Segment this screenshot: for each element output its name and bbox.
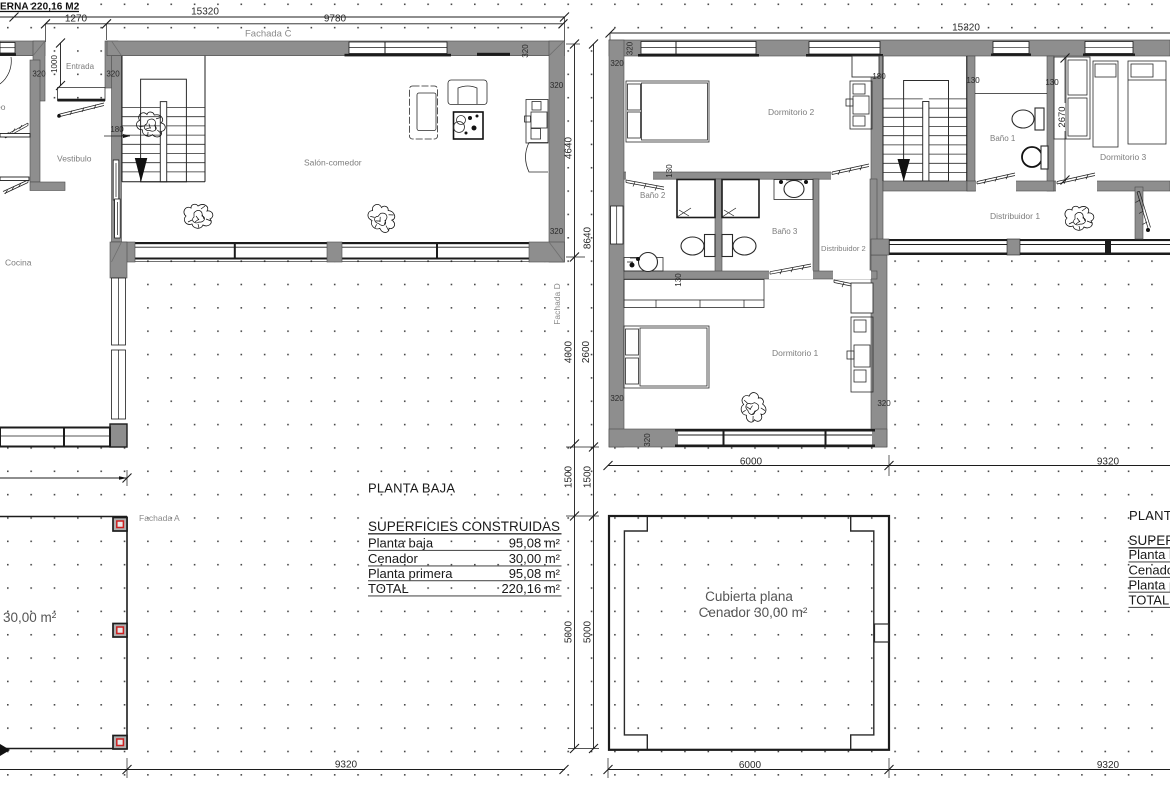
svg-text:eo: eo: [0, 102, 6, 112]
svg-text:Fachada A: Fachada A: [139, 513, 180, 523]
svg-text:4000: 4000: [564, 340, 575, 363]
svg-text:Planta primera: Planta primera: [368, 566, 453, 581]
svg-text:Distribuidor 1: Distribuidor 1: [990, 211, 1040, 221]
svg-text:Planta baja: Planta baja: [1129, 547, 1170, 562]
svg-text:320: 320: [877, 399, 891, 408]
svg-text:PLANTA BAJA: PLANTA BAJA: [368, 481, 455, 496]
svg-text:320: 320: [610, 394, 624, 403]
svg-text:320: 320: [32, 70, 46, 79]
svg-text:15320: 15320: [952, 23, 980, 34]
svg-text:Fachada C: Fachada C: [245, 29, 292, 40]
svg-text:TOTAL: TOTAL: [1129, 593, 1170, 608]
svg-text:Cenador: Cenador: [1129, 562, 1170, 577]
svg-text:Dormitorio 3: Dormitorio 3: [1100, 152, 1147, 162]
svg-text:320: 320: [106, 70, 120, 79]
svg-text:15320: 15320: [191, 7, 219, 18]
svg-text:Planta baja: Planta baja: [368, 536, 434, 551]
svg-text:Fachada D: Fachada D: [552, 283, 562, 325]
svg-text:9320: 9320: [1097, 760, 1120, 771]
svg-text:320: 320: [626, 41, 635, 55]
svg-text:Cocina: Cocina: [5, 258, 32, 268]
svg-text:320: 320: [610, 59, 624, 68]
svg-text:5000: 5000: [583, 620, 594, 643]
svg-text:130: 130: [966, 76, 980, 85]
svg-text:Dormitorio 1: Dormitorio 1: [772, 348, 819, 358]
svg-text:30,00 m²: 30,00 m²: [3, 610, 57, 625]
svg-text:Cenador 30,00 m²: Cenador 30,00 m²: [699, 605, 808, 620]
svg-text:1000: 1000: [50, 55, 59, 73]
svg-text:6000: 6000: [740, 457, 763, 468]
svg-text:Salón-comedor: Salón-comedor: [304, 158, 362, 168]
svg-text:9320: 9320: [1097, 457, 1120, 468]
svg-text:320: 320: [550, 227, 564, 236]
svg-text:Entrada: Entrada: [66, 62, 95, 71]
svg-text:SUPERFICIES CONSTRUIDAS: SUPERFICIES CONSTRUIDAS: [1129, 533, 1170, 548]
svg-text:30,00 m²: 30,00 m²: [509, 551, 561, 566]
svg-text:320: 320: [521, 44, 530, 58]
svg-text:95,08 m²: 95,08 m²: [509, 536, 561, 551]
svg-text:130: 130: [665, 164, 674, 178]
svg-text:95,08 m²: 95,08 m²: [509, 566, 561, 581]
svg-text:ERNA 220,16 M2: ERNA 220,16 M2: [0, 2, 80, 13]
svg-text:Planta primera: Planta primera: [1129, 578, 1170, 593]
svg-text:130: 130: [1045, 78, 1059, 87]
svg-text:220,16 m²: 220,16 m²: [501, 581, 560, 596]
svg-text:320: 320: [643, 433, 652, 447]
svg-text:TOTAL: TOTAL: [368, 581, 409, 596]
svg-text:SUPERFICIES CONSTRUIDAS: SUPERFICIES CONSTRUIDAS: [368, 519, 560, 534]
svg-text:9780: 9780: [324, 14, 347, 25]
svg-text:PLANTA PRIMERA: PLANTA PRIMERA: [1129, 508, 1170, 523]
svg-text:1500: 1500: [564, 465, 575, 488]
svg-text:9320: 9320: [335, 760, 358, 771]
svg-text:Baño 2: Baño 2: [640, 191, 666, 200]
svg-text:5000: 5000: [564, 620, 575, 643]
svg-text:Baño 1: Baño 1: [990, 134, 1016, 143]
svg-text:Dormitorio 2: Dormitorio 2: [768, 107, 815, 117]
svg-text:8640: 8640: [583, 226, 594, 249]
svg-text:2670: 2670: [1057, 106, 1068, 127]
svg-text:130: 130: [674, 273, 683, 287]
svg-text:4640: 4640: [564, 136, 575, 159]
svg-text:6000: 6000: [739, 760, 762, 771]
svg-text:180: 180: [872, 72, 886, 81]
svg-text:1270: 1270: [65, 14, 88, 25]
svg-text:Distribuidor 2: Distribuidor 2: [821, 244, 866, 253]
svg-text:1500: 1500: [583, 465, 594, 488]
svg-text:Cenador: Cenador: [368, 551, 419, 566]
svg-text:Cubierta plana: Cubierta plana: [705, 589, 793, 604]
svg-text:Baño 3: Baño 3: [772, 227, 798, 236]
svg-text:2600: 2600: [581, 340, 592, 363]
svg-text:320: 320: [550, 81, 564, 90]
svg-text:Vestibulo: Vestibulo: [57, 154, 92, 164]
